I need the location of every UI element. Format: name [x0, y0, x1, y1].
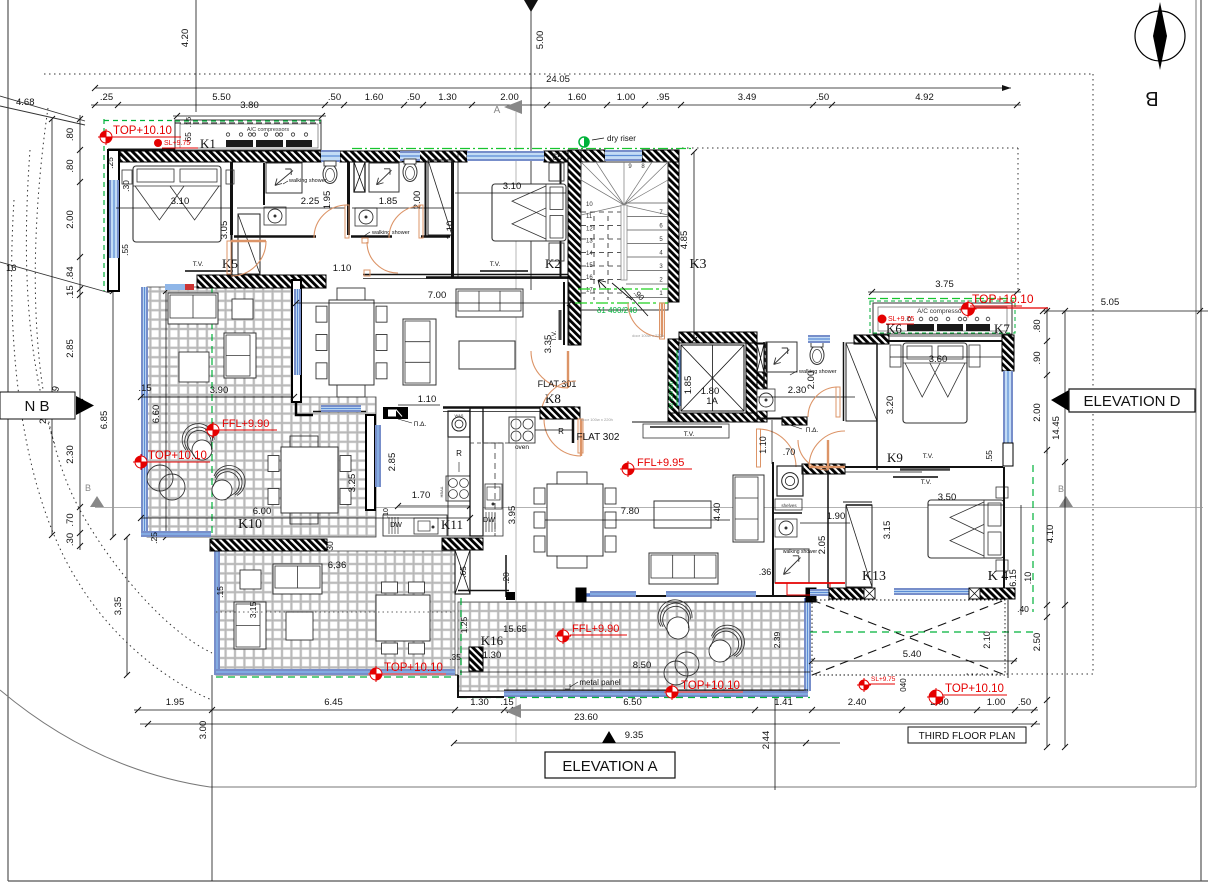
svg-text:1.95: 1.95 [166, 697, 185, 708]
svg-text:2.30: 2.30 [65, 445, 76, 464]
svg-text:6.60: 6.60 [151, 405, 162, 424]
svg-text:FFL+9.90: FFL+9.90 [222, 418, 269, 430]
svg-text:.80: .80 [65, 128, 76, 141]
svg-text:R: R [456, 449, 462, 458]
svg-text:5.00: 5.00 [535, 31, 546, 50]
svg-text:TOP+10.10: TOP+10.10 [972, 292, 1034, 306]
svg-text:1.90: 1.90 [827, 511, 846, 522]
svg-text:.15: .15 [184, 117, 193, 127]
svg-text:.40: .40 [1017, 604, 1029, 614]
svg-text:3.00: 3.00 [198, 721, 209, 740]
svg-text:K10: K10 [238, 517, 262, 532]
svg-text:3.60: 3.60 [929, 354, 948, 365]
svg-text:DW: DW [390, 522, 402, 529]
svg-text:6,36: 6,36 [328, 560, 347, 571]
svg-text:040: 040 [899, 678, 908, 692]
svg-text:3.50: 3.50 [938, 492, 957, 503]
svg-text:1.41: 1.41 [774, 697, 793, 708]
svg-text:2.85: 2.85 [387, 453, 398, 472]
svg-text:12: 12 [586, 226, 593, 232]
svg-text:K5: K5 [222, 256, 238, 271]
svg-text:K2: K2 [545, 256, 561, 271]
svg-text:.15: .15 [65, 285, 76, 298]
svg-text:14.45: 14.45 [1051, 416, 1062, 440]
svg-text:dry riser: dry riser [607, 134, 636, 143]
svg-text:1.85: 1.85 [379, 196, 398, 207]
svg-text:.55: .55 [984, 450, 994, 462]
svg-text:5.05: 5.05 [1101, 297, 1120, 308]
svg-text:.90: .90 [1032, 351, 1043, 364]
svg-text:2.39: 2.39 [772, 631, 782, 648]
svg-text:7.80: 7.80 [621, 506, 640, 517]
svg-text:.50: .50 [328, 92, 341, 103]
svg-text:4.92: 4.92 [915, 92, 934, 103]
svg-text:A: A [494, 105, 501, 116]
svg-text:4.40: 4.40 [712, 503, 723, 522]
svg-text:16: 16 [586, 275, 593, 281]
svg-text:ELEVATION A: ELEVATION A [562, 758, 657, 775]
svg-text:3.20: 3.20 [885, 396, 896, 415]
svg-text:TOP+10.10: TOP+10.10 [681, 680, 740, 692]
svg-text:K1: K1 [200, 136, 216, 151]
svg-text:T.V.: T.V. [684, 431, 695, 438]
svg-text:2.40: 2.40 [848, 697, 867, 708]
svg-text:A/C compressors: A/C compressors [247, 127, 289, 133]
svg-text:3.15: 3.15 [882, 521, 893, 540]
svg-text:2.30: 2.30 [788, 385, 807, 396]
svg-text:23.60: 23.60 [574, 712, 598, 723]
svg-text:1.85: 1.85 [683, 376, 694, 395]
svg-text:.35: .35 [449, 652, 461, 662]
svg-text:6.85: 6.85 [99, 411, 110, 430]
svg-text:1.00: 1.00 [987, 697, 1006, 708]
svg-text:.50: .50 [407, 92, 420, 103]
svg-text:T.V.: T.V. [490, 261, 501, 268]
svg-text:K13: K13 [862, 569, 886, 584]
svg-text:Π.Δ.: Π.Δ. [414, 421, 427, 428]
svg-text:15.65: 15.65 [503, 624, 527, 635]
svg-text:oven: oven [515, 444, 529, 451]
svg-text:.20: .20 [501, 572, 511, 584]
svg-text:2.00: 2.00 [500, 92, 519, 103]
svg-text:.30: .30 [121, 180, 131, 192]
svg-text:3.49: 3.49 [738, 92, 757, 103]
svg-text:walking shower: walking shower [371, 230, 410, 236]
svg-text:K11: K11 [441, 517, 463, 532]
svg-text:T.V.: T.V. [923, 453, 934, 460]
svg-text:FFL+9.90: FFL+9.90 [572, 623, 619, 635]
svg-text:6.50: 6.50 [623, 697, 642, 708]
svg-text:.10: .10 [1023, 572, 1033, 585]
svg-text:.80: .80 [65, 159, 76, 172]
svg-text:2.00: 2.00 [806, 371, 817, 390]
svg-text:2.25: 2.25 [301, 196, 320, 207]
svg-text:T.V.: T.V. [193, 261, 204, 268]
svg-text:R: R [558, 427, 564, 436]
svg-text:4.85: 4.85 [679, 231, 690, 250]
svg-text:.25: .25 [100, 92, 113, 103]
svg-text:.50: .50 [816, 92, 829, 103]
svg-text:.50: .50 [1018, 697, 1031, 708]
svg-text:1.10: 1.10 [333, 263, 352, 274]
svg-text:.70: .70 [65, 513, 76, 526]
svg-text:3.95: 3.95 [507, 506, 518, 525]
svg-text:6.00: 6.00 [253, 506, 272, 517]
svg-text:4.10: 4.10 [1045, 525, 1056, 544]
svg-text:K9: K9 [887, 450, 903, 465]
svg-text:13: 13 [586, 239, 593, 245]
svg-text:30: 30 [325, 541, 335, 551]
svg-text:.84: .84 [65, 266, 76, 279]
svg-text:K3: K3 [689, 257, 706, 272]
svg-text:3.75: 3.75 [935, 279, 954, 290]
svg-text:4.68: 4.68 [16, 97, 35, 108]
svg-text:3.80: 3.80 [240, 100, 259, 111]
svg-text:B: B [1145, 87, 1158, 109]
svg-text:9.35: 9.35 [625, 730, 644, 741]
svg-text:FLAT 302: FLAT 302 [577, 432, 620, 443]
svg-text:.25: .25 [105, 157, 115, 169]
svg-text:door 100w x 220h: door 100w x 220h [581, 417, 613, 422]
svg-text:2.00: 2.00 [1032, 403, 1043, 422]
svg-text:1.95: 1.95 [322, 191, 333, 210]
svg-text:14: 14 [586, 251, 593, 257]
svg-text:2.50: 2.50 [1032, 633, 1043, 652]
svg-text:walking shower: walking shower [288, 178, 327, 184]
svg-text:1.60: 1.60 [365, 92, 384, 103]
svg-text:.15: .15 [500, 697, 513, 708]
svg-text:1.10: 1.10 [758, 436, 768, 454]
svg-text:7.00: 7.00 [428, 290, 447, 301]
svg-text:2.10: 2.10 [982, 631, 992, 649]
svg-text:.36: .36 [759, 567, 772, 577]
svg-text:K6: K6 [886, 321, 902, 336]
svg-text:ELEVATION D: ELEVATION D [1084, 393, 1181, 410]
svg-text:3.10: 3.10 [445, 221, 456, 240]
svg-text:16: 16 [6, 263, 17, 274]
svg-text:SL+9.75: SL+9.75 [164, 140, 190, 147]
svg-text:SL+9.75: SL+9.75 [871, 676, 896, 683]
svg-text:3.90: 3.90 [210, 385, 229, 396]
svg-text:δ2 250/500: δ2 250/500 [669, 381, 675, 409]
svg-text:.55: .55 [120, 244, 130, 256]
svg-text:δ1 400/240: δ1 400/240 [597, 306, 638, 315]
svg-text:.25: .25 [149, 532, 159, 544]
svg-text:24.05: 24.05 [546, 74, 570, 85]
svg-text:4.20: 4.20 [180, 29, 191, 48]
svg-text:.65: .65 [458, 566, 468, 578]
svg-text:.15: .15 [138, 383, 151, 394]
svg-text:shelves: shelves [781, 503, 797, 508]
svg-text:2.44: 2.44 [761, 731, 772, 750]
svg-text:2.00: 2.00 [65, 210, 76, 229]
svg-text:K 4: K 4 [988, 569, 1009, 584]
svg-text:6.15: 6.15 [1008, 569, 1018, 587]
svg-text:8.50: 8.50 [633, 660, 652, 671]
svg-text:Π.Δ.: Π.Δ. [806, 427, 819, 434]
svg-text:17: 17 [586, 287, 593, 293]
svg-text:2.05: 2.05 [817, 536, 828, 555]
svg-text:.80: .80 [1032, 319, 1043, 332]
svg-text:TOP+10.10: TOP+10.10 [945, 683, 1004, 695]
svg-text:FFL+9.95: FFL+9.95 [637, 457, 684, 469]
svg-text:1.60: 1.60 [568, 92, 587, 103]
svg-text:1.30: 1.30 [483, 650, 502, 661]
svg-text:5.40: 5.40 [903, 649, 922, 660]
svg-text:.10: .10 [383, 508, 390, 518]
svg-text:metal panel: metal panel [579, 678, 621, 687]
svg-text:11: 11 [586, 214, 593, 220]
svg-text:1.70: 1.70 [412, 490, 431, 501]
svg-text:3.05: 3.05 [219, 221, 230, 240]
svg-text:1.00: 1.00 [617, 92, 636, 103]
svg-text:TOP+10.10: TOP+10.10 [113, 125, 172, 137]
svg-text:TOP+10.10: TOP+10.10 [384, 662, 443, 674]
svg-text:.70: .70 [783, 447, 796, 457]
svg-text:5.50: 5.50 [212, 92, 231, 103]
svg-text:.15: .15 [215, 586, 225, 598]
svg-text:K16: K16 [481, 633, 504, 648]
svg-text:6.45: 6.45 [324, 697, 343, 708]
svg-text:.30: .30 [65, 533, 76, 546]
svg-text:3.35: 3.35 [543, 335, 554, 354]
svg-text:door 100w x 220h: door 100w x 220h [632, 333, 664, 338]
svg-text:FLAT 301: FLAT 301 [538, 379, 577, 389]
svg-text:3.10: 3.10 [503, 181, 522, 192]
svg-text:walking shower: walking shower [783, 549, 818, 555]
svg-text:TOP+10.10: TOP+10.10 [148, 450, 207, 462]
svg-text:THIRD FLOOR PLAN: THIRD FLOOR PLAN [919, 731, 1016, 742]
svg-text:1.25: 1.25 [459, 616, 469, 633]
svg-text:SL+9.75: SL+9.75 [888, 316, 914, 323]
svg-text:15: 15 [586, 263, 593, 269]
svg-text:walking shower: walking shower [798, 369, 837, 375]
svg-text:DW: DW [483, 517, 495, 524]
svg-text:.65: .65 [550, 152, 563, 162]
svg-text:3.25: 3.25 [347, 474, 358, 493]
svg-text:T.V.: T.V. [921, 479, 932, 486]
svg-text:3.10: 3.10 [171, 196, 190, 207]
svg-text:1.30: 1.30 [470, 697, 489, 708]
svg-text:K8: K8 [545, 391, 561, 406]
svg-text:B: B [1058, 484, 1064, 494]
svg-text:WAS: WAS [455, 413, 464, 418]
svg-text:1Α: 1Α [706, 396, 718, 407]
svg-text:1.30: 1.30 [438, 92, 457, 103]
svg-text:3,35: 3,35 [113, 597, 124, 616]
svg-text:2.85: 2.85 [65, 339, 76, 358]
svg-text:B: B [85, 483, 91, 493]
svg-text:K7: K7 [994, 321, 1010, 336]
svg-text:3.15: 3.15 [248, 601, 258, 618]
svg-text:N B: N B [24, 398, 49, 415]
svg-text:ΗΒΑΔ: ΗΒΑΔ [439, 486, 444, 497]
svg-text:.95: .95 [656, 92, 669, 103]
svg-text:10: 10 [586, 202, 593, 208]
svg-text:1.10: 1.10 [418, 394, 437, 405]
